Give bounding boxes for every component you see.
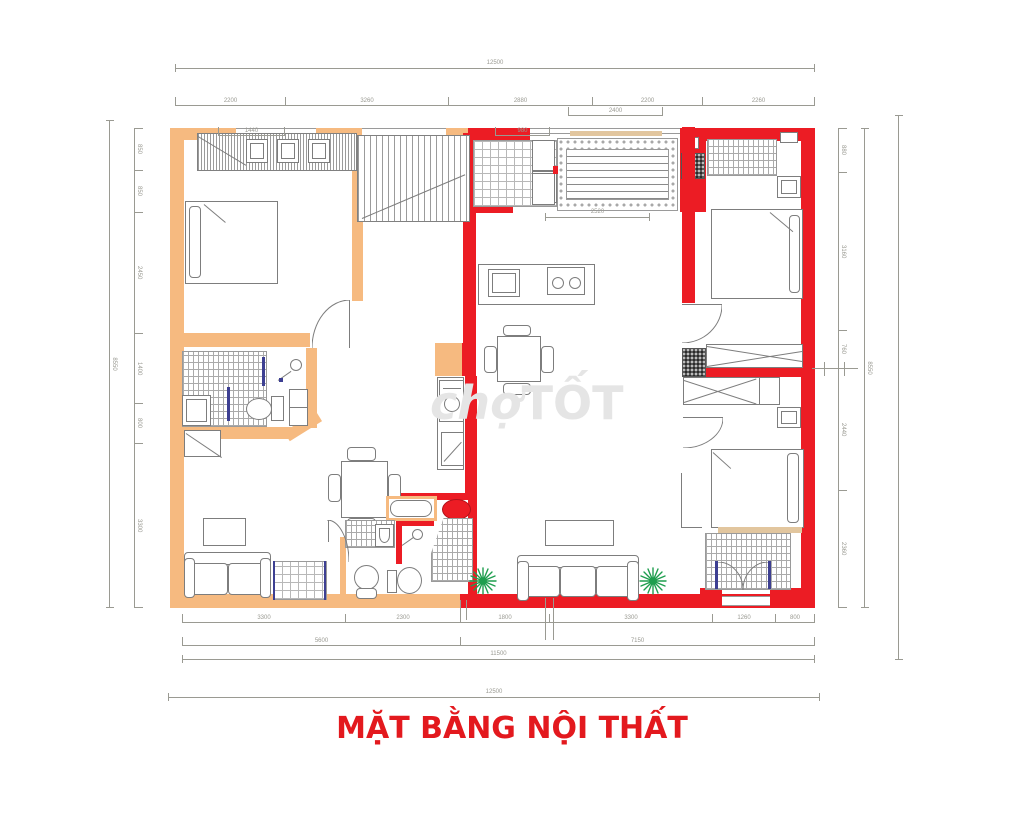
wardrobe-drawer-3 (308, 139, 330, 163)
door-leaf-lounge (328, 520, 329, 542)
dim-segment: 5600 (182, 637, 460, 645)
wardrobe-drawer-1 (246, 139, 268, 163)
dim-segment: 3300 (182, 614, 345, 622)
tv-cabinet-living (545, 520, 614, 546)
kitchen-counter-sink (488, 269, 520, 297)
dim-top-chain: 2200 3260 2880 2200 2260 (175, 97, 815, 106)
bath1-sink (182, 395, 211, 426)
duct-shaft-2 (682, 348, 706, 377)
wall-bedroom2-west (682, 127, 695, 303)
wall-junction-orange (435, 343, 463, 376)
dim-segment: 1800 (460, 614, 549, 622)
door-arc-master-bedroom (312, 300, 350, 348)
dim-segment: 3300 (549, 614, 712, 622)
desk-chair-left (328, 474, 341, 502)
bath1-toilet-tank (271, 396, 284, 421)
door-arc-bedroom2 (682, 305, 722, 343)
dim-segment: 2440 (839, 368, 847, 490)
hall-tile-edge-left (273, 561, 275, 600)
dim-bottom-chain-2: 5600 7150 (182, 637, 815, 646)
dim-segment: 7150 (460, 637, 815, 645)
bedroom3-pillow (787, 453, 799, 523)
survey-cross-1 (818, 362, 832, 376)
balcony-top-sill (570, 131, 662, 136)
door-leaf-bedroom2 (682, 304, 722, 305)
bath3-toilet-bowl (354, 565, 379, 590)
bedroom2-pillow (789, 215, 800, 293)
dim-right-outer (898, 115, 906, 660)
bath2-shower-head-icon (402, 527, 428, 553)
door-leaf-bedroom3 (683, 417, 723, 418)
dim-segment: 1260 (712, 614, 775, 622)
bath2-shower-tile (431, 518, 473, 582)
door-leaf-master-bedroom (349, 300, 350, 348)
wall-center-red-b (463, 211, 476, 343)
bath1-shower-screen-2 (227, 387, 230, 421)
bath1-shelf (289, 389, 308, 426)
dim-right-chain: 880 3160 760 2440 2360 (838, 128, 847, 608)
bath1-toilet-bowl (246, 398, 272, 420)
bath2-toilet-bowl (397, 567, 422, 594)
wardrobe-drawer-2 (277, 139, 299, 163)
watermark: chợTỐT (430, 376, 624, 430)
wall-junction-red (462, 343, 476, 376)
desk-table (341, 461, 388, 518)
balcony3-pier-right (770, 588, 802, 608)
dim-segment: 3300 (135, 443, 143, 608)
bath3-toilet-base (356, 588, 377, 599)
bedroom2-nightstand (777, 176, 801, 198)
dim-top-sub-a: 1440 (218, 127, 285, 136)
bath2-basin-red (442, 499, 471, 520)
bath3-sink (375, 524, 394, 547)
dim-segment: 800 (135, 403, 143, 443)
dim-top-sub-b: 980 (495, 127, 550, 136)
dim-segment: 2400 (568, 107, 663, 115)
door-arc-lounge (327, 520, 349, 562)
sofa2-cushion-1 (191, 563, 228, 595)
dim-segment: 850 (135, 128, 143, 170)
dim-segment: 980 (495, 127, 550, 135)
dim-left-chain: 850 850 2450 1400 800 3300 (134, 128, 143, 608)
bed-master-pillow (189, 206, 201, 278)
hall-tile-edge-right (324, 561, 326, 600)
sofa3-cushion-1 (524, 566, 560, 597)
bedroom2-wardrobe (707, 139, 777, 176)
watermark-part1: chợ (430, 376, 522, 430)
balcony3-jamb-right (768, 561, 771, 589)
door-arc-balcony-right (743, 562, 768, 590)
dim-segment: 2300 (345, 614, 460, 622)
dim-bottom-outer: 12500 (168, 690, 820, 698)
sofa2-arm-left (184, 558, 195, 598)
bathtub-inner (390, 500, 432, 517)
floor-plan: 12500 2200 3260 2880 2200 2260 1440 980 … (0, 0, 1024, 819)
dim-left-overall: 8550 (109, 120, 117, 608)
hall-floor-tile (273, 561, 327, 600)
dim-segment: 880 (839, 128, 847, 172)
sofa3-cushion-2 (560, 566, 596, 597)
wall-bedroom1-south (184, 333, 310, 347)
bedroom3-wardrobe-divider (759, 378, 760, 404)
sofa2-arm-right (260, 558, 271, 598)
bath2-toilet-tank (387, 570, 397, 593)
wall-bedroom3-corner-v (681, 473, 682, 528)
utility-sink (441, 432, 464, 466)
dim-segment: 2880 (448, 97, 592, 105)
bedroom3-nightstand (777, 407, 801, 428)
dining-chair-top (503, 325, 531, 336)
bath1-shower-head-icon (278, 356, 304, 386)
window-entry (780, 132, 798, 143)
dim-bottom-chain: 3300 2300 1800 3300 1260 800 (182, 614, 815, 623)
dim-bottom-overall: 11500 (182, 652, 815, 660)
balcony-door-threshold (722, 596, 770, 606)
balcony1-deck (566, 149, 669, 200)
dim-segment: 1400 (135, 333, 143, 403)
wall-bedroom3-corner-h (681, 527, 702, 528)
plant-icon (468, 566, 498, 596)
kitchen-stove (547, 267, 585, 295)
dim-segment: 2360 (839, 490, 847, 608)
dim-segment: 3260 (285, 97, 448, 105)
dim-segment: 2200 (592, 97, 702, 105)
cabinet-below-bath (184, 430, 221, 457)
door-arc-balcony-left (718, 562, 743, 590)
dim-segment: 1440 (218, 127, 285, 135)
dim-segment: 2200 (175, 97, 285, 105)
watermark-part2: TỐT (522, 376, 624, 430)
balcony1-planter-b (532, 173, 555, 205)
dim-segment: 800 (775, 614, 815, 622)
balcony3-pier-left (700, 588, 722, 608)
sofa3-arm-left (517, 561, 529, 601)
dim-segment: 2260 (702, 97, 815, 105)
dim-segment: 3160 (839, 172, 847, 330)
door-arc-bedroom3 (683, 418, 723, 448)
dim-segment: 2450 (135, 212, 143, 333)
bath1-shower-screen-1 (262, 357, 265, 386)
dining-chair-right (541, 346, 554, 373)
dim-segment: 760 (839, 330, 847, 368)
dim-right-overall: 8550 (864, 128, 872, 608)
balcony1-red-tick (553, 166, 558, 174)
dim-balcony-inner: 2520 (545, 210, 650, 218)
bedroom3-wardrobe (683, 377, 780, 405)
drawing-title: MẶT BẰNG NỘI THẤT (0, 711, 1024, 746)
plant-icon (638, 566, 668, 596)
dim-top-overall: 12500 (175, 61, 815, 69)
dining-chair-left (484, 346, 497, 373)
dim-balcony-width: 2400 (568, 107, 663, 116)
tv-cabinet-lounge (203, 518, 246, 546)
balcony1-planter-a (532, 140, 555, 171)
desk-chair-top (347, 447, 376, 461)
dim-segment: 850 (135, 170, 143, 212)
